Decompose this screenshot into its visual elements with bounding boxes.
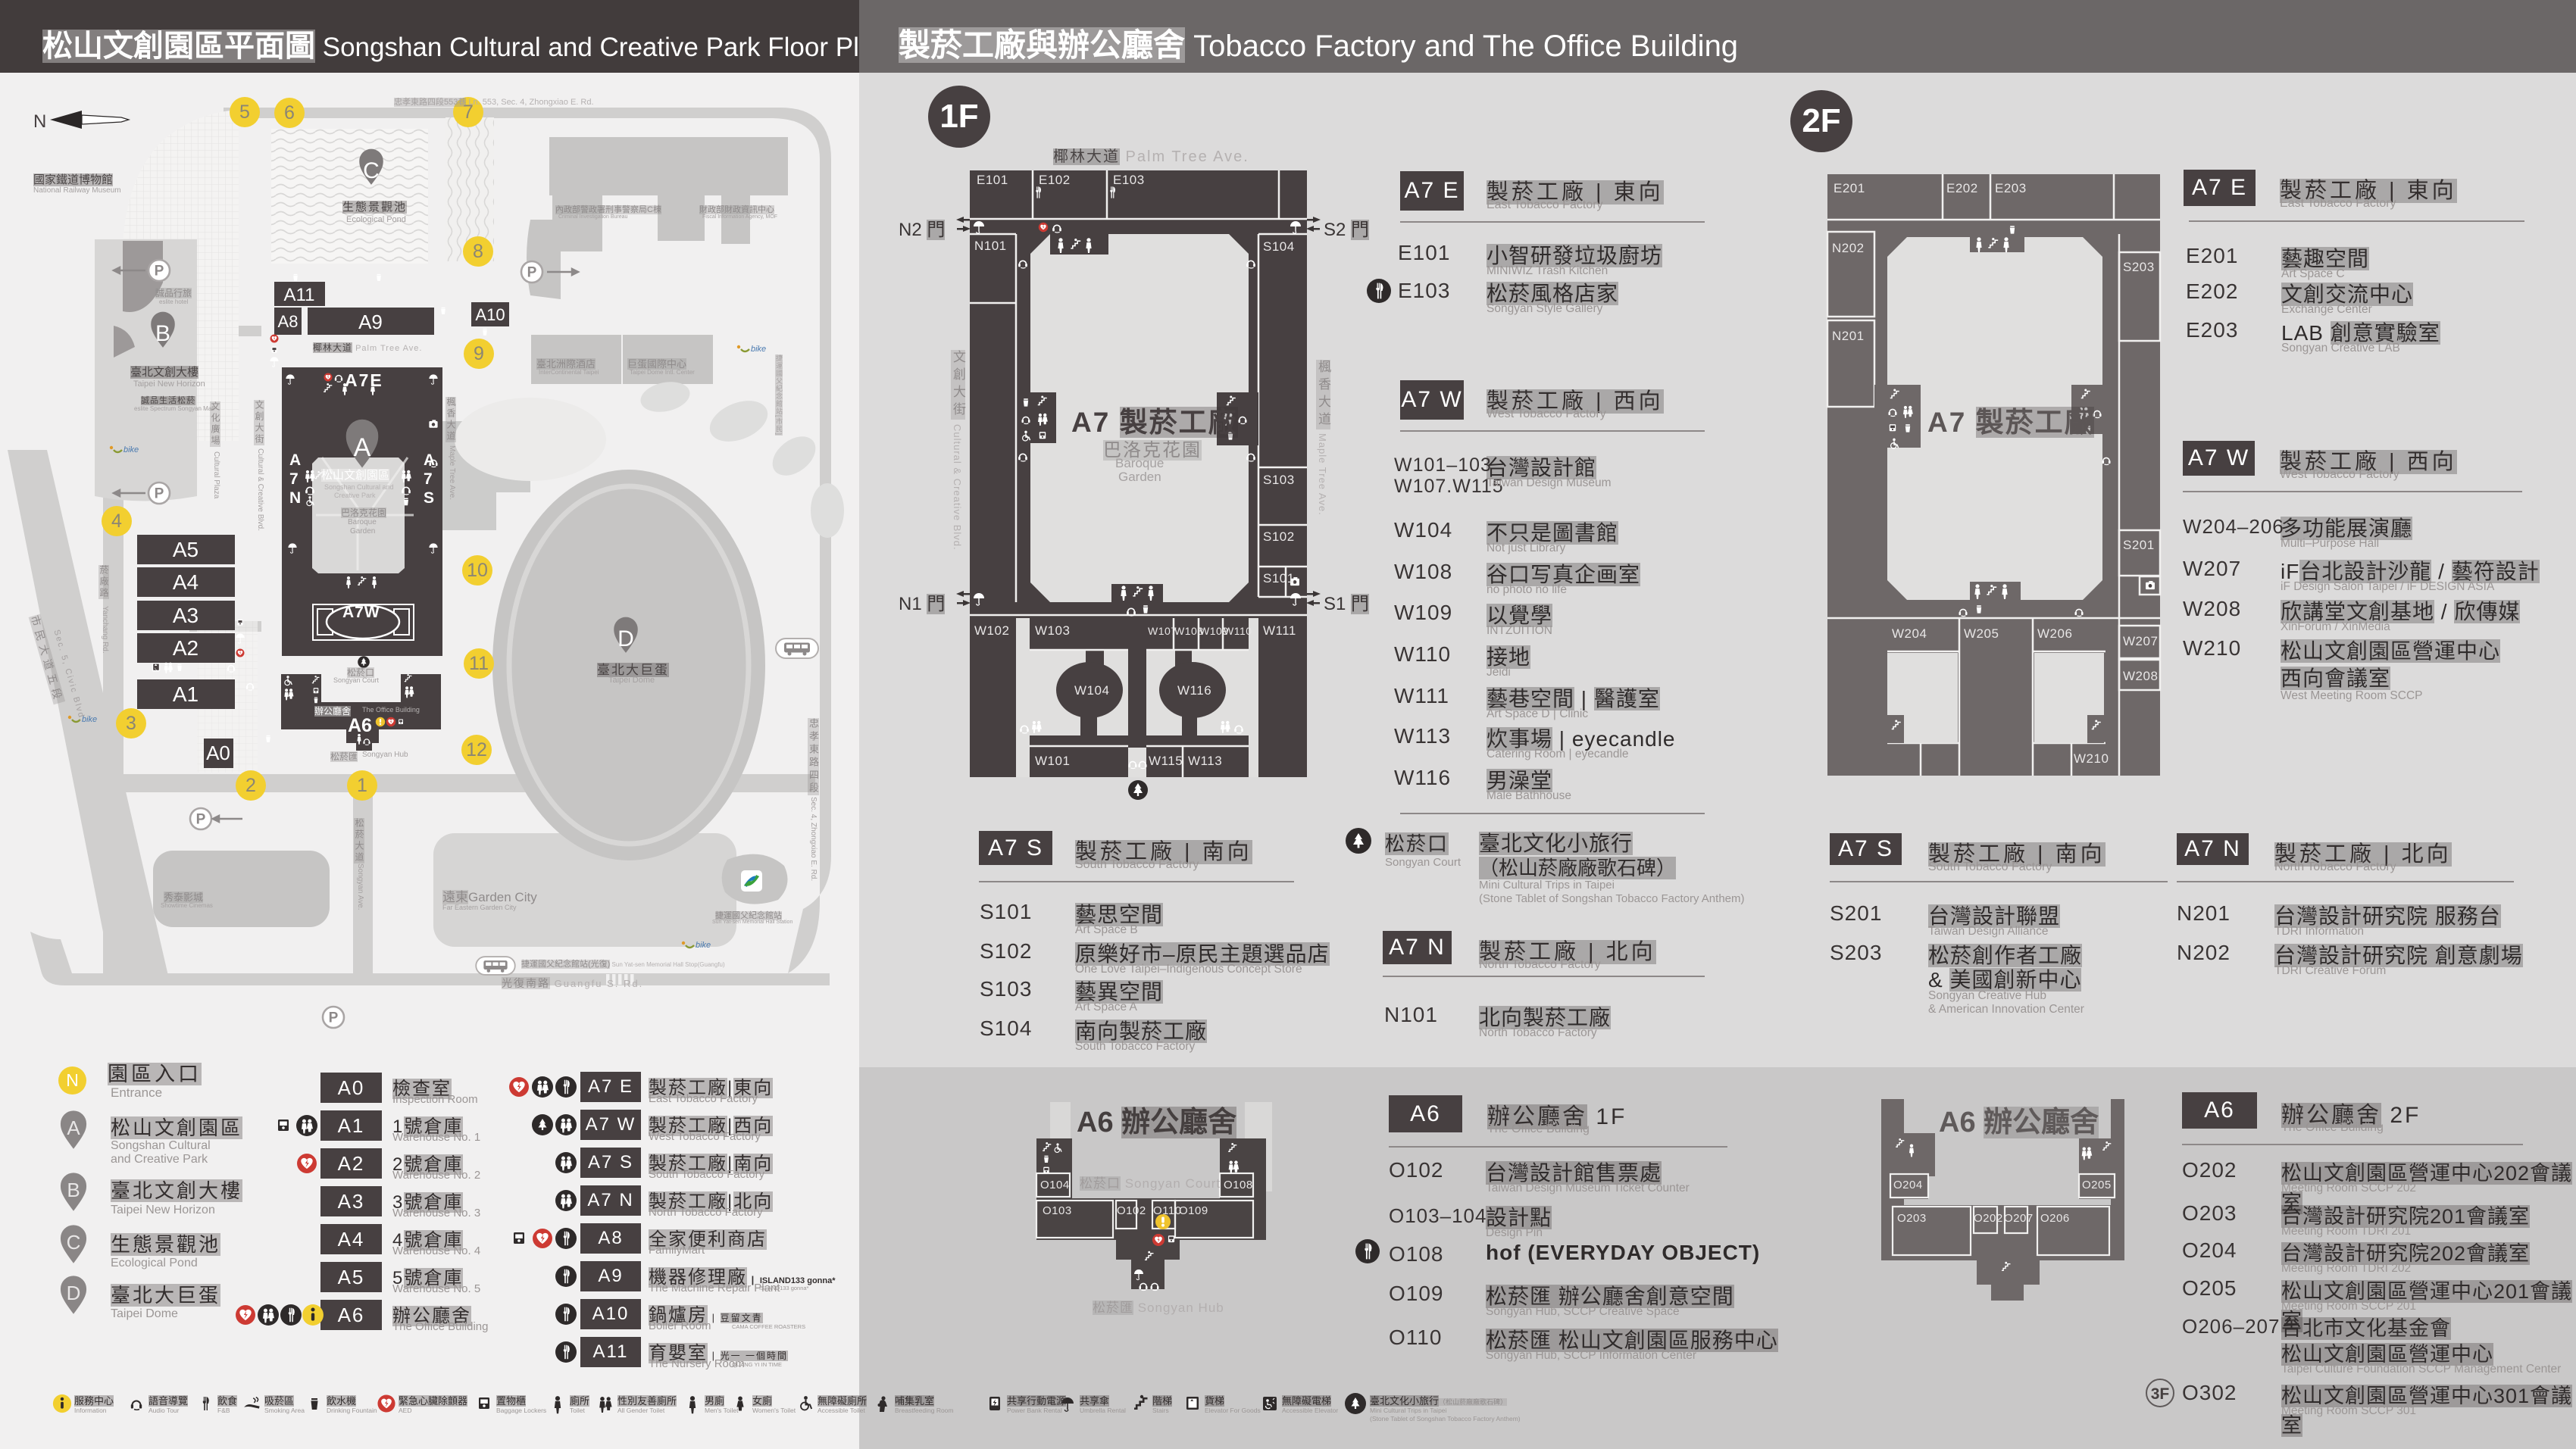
svg-text:3F: 3F bbox=[2151, 1385, 2170, 1403]
